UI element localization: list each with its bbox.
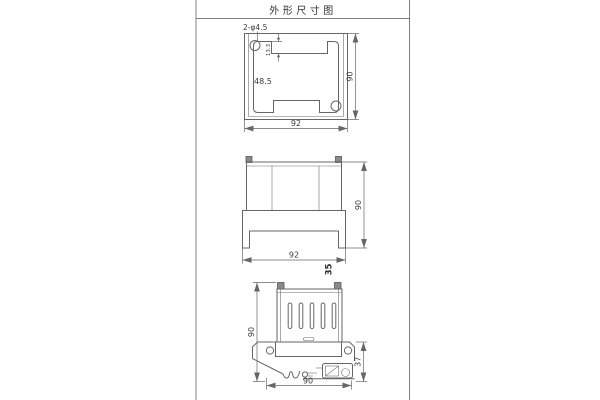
sheet-frame: 外形尺寸图 bbox=[196, 0, 410, 400]
dim-depth-label: 35 bbox=[325, 264, 335, 276]
top-view: 2-φ4.5 13.3 48.5 90 92 bbox=[243, 23, 359, 132]
dim-inner-label: 48.5 bbox=[254, 77, 272, 86]
front-view: 90 92 35 bbox=[243, 157, 368, 276]
flange-screw-right bbox=[344, 347, 351, 354]
clip-latch-foot bbox=[342, 369, 350, 377]
front-view-base bbox=[243, 211, 346, 249]
dim-top-view-width: 92 bbox=[245, 119, 348, 132]
dim-step-label: 13.3 bbox=[266, 43, 272, 56]
drawing-sheet: 外形尺寸图 2-φ4.5 13.3 48.5 90 bbox=[0, 0, 600, 400]
dimension-drawing: 外形尺寸图 2-φ4.5 13.3 48.5 90 bbox=[0, 0, 600, 400]
dim-front-view-height-label: 90 bbox=[354, 200, 363, 210]
page-title: 外形尺寸图 bbox=[269, 4, 337, 17]
dim-rail-height-label: 37 bbox=[353, 357, 362, 367]
vent-slots bbox=[288, 303, 336, 329]
dim-front-view-width: 92 bbox=[243, 248, 346, 264]
side-square-right bbox=[335, 283, 342, 290]
flange-screw-left bbox=[266, 347, 273, 354]
rail-channel bbox=[276, 342, 342, 357]
side-square-left bbox=[278, 283, 285, 290]
dim-side-view-width-label: 90 bbox=[303, 377, 313, 386]
dim-step: 13.3 bbox=[266, 34, 282, 62]
dim-rail-height: 37 bbox=[353, 342, 367, 382]
mounting-flange bbox=[253, 342, 355, 361]
label-slot bbox=[304, 338, 315, 341]
dim-top-view-width-label: 92 bbox=[291, 119, 301, 128]
front-view-body bbox=[247, 162, 342, 211]
hole-callout-label: 2-φ4.5 bbox=[243, 23, 268, 32]
dim-front-view-width-label: 92 bbox=[289, 251, 299, 260]
side-view: 90 37 90 bbox=[247, 283, 367, 390]
dim-top-view-height-label: 90 bbox=[346, 71, 355, 81]
mounting-hole-bottom-right bbox=[331, 101, 341, 111]
dim-side-view-height: 90 bbox=[247, 283, 276, 382]
dim-side-view-height-label: 90 bbox=[247, 327, 256, 337]
